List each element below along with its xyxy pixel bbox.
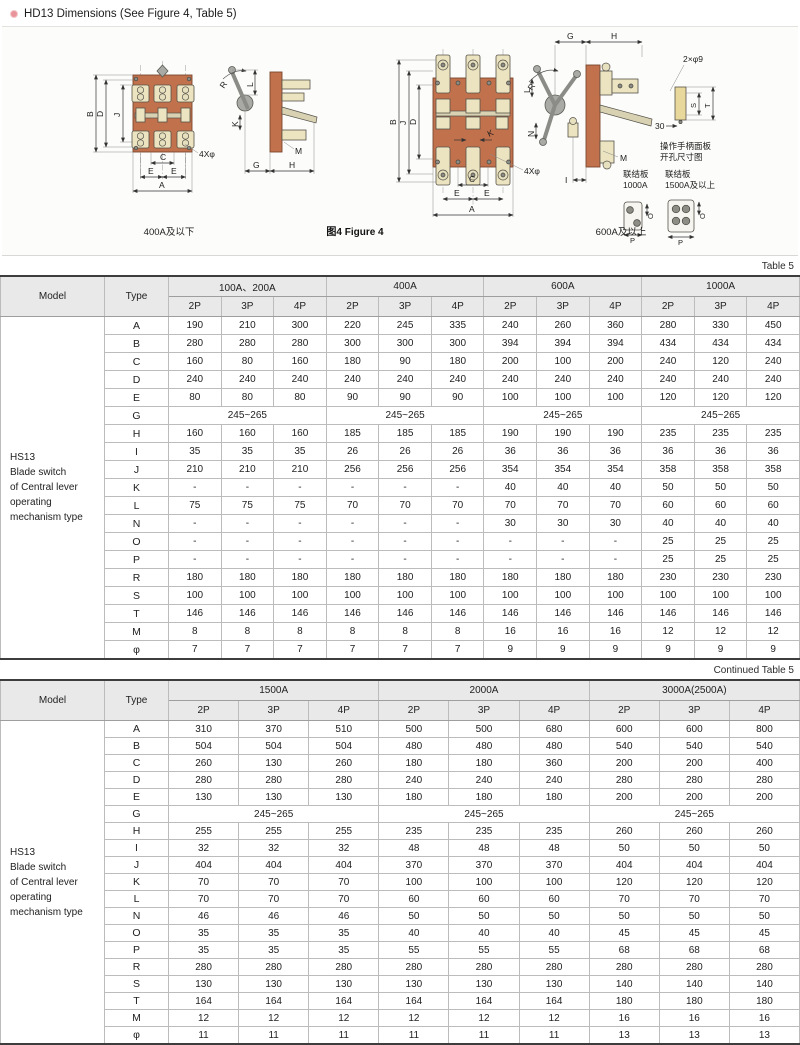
value-cell: 60 <box>642 497 695 515</box>
value-cell: - <box>379 515 432 533</box>
caption-600a: 600A及以上 <box>596 227 647 238</box>
value-cell: 280 <box>309 959 379 976</box>
value-cell: 25 <box>642 533 695 551</box>
value-cell: 32 <box>309 840 379 857</box>
value-cell: 70 <box>239 891 309 908</box>
dim-label-k: K <box>230 121 240 127</box>
value-cell: 46 <box>239 908 309 925</box>
value-cell: - <box>431 479 484 497</box>
table-row: L707070606060707070 <box>1 891 800 908</box>
value-cell: 260 <box>169 755 239 772</box>
value-cell: 240 <box>379 772 449 789</box>
value-cell: 50 <box>729 908 799 925</box>
value-cell: 46 <box>169 908 239 925</box>
value-cell: - <box>274 551 327 569</box>
value-cell: - <box>484 551 537 569</box>
side-view-400a: R L K M G H <box>217 67 317 175</box>
value-cell: 130 <box>169 976 239 993</box>
value-cell: 50 <box>659 908 729 925</box>
value-cell: 50 <box>519 908 589 925</box>
value-cell: 35 <box>309 942 379 959</box>
value-cell: 600 <box>659 721 729 738</box>
value-cell: 7 <box>379 641 432 660</box>
holes-note: 2×φ9 <box>683 54 703 64</box>
value-cell: 200 <box>589 789 659 806</box>
row-type: B <box>105 738 169 755</box>
row-type: T <box>105 993 169 1010</box>
value-cell: 120 <box>694 389 747 407</box>
value-cell: 35 <box>169 925 239 942</box>
value-cell: 130 <box>379 976 449 993</box>
plate2-amp: 1500A及以上 <box>665 180 716 190</box>
table-row: P---------252525 <box>1 551 800 569</box>
table-row: K707070100100100120120120 <box>1 874 800 891</box>
value-cell: 70 <box>326 497 379 515</box>
table-row: E130130130180180180200200200 <box>1 789 800 806</box>
value-cell: 36 <box>484 443 537 461</box>
dim-label-j: J <box>112 113 122 117</box>
value-cell: 16 <box>484 623 537 641</box>
value-cell: 55 <box>519 942 589 959</box>
value-cell: 240 <box>589 371 642 389</box>
value-cell: 48 <box>449 840 519 857</box>
value-cell: 36 <box>642 443 695 461</box>
table-row: D280280280240240240280280280 <box>1 772 800 789</box>
table-row: M888888161616121212 <box>1 623 800 641</box>
value-cell: 146 <box>431 605 484 623</box>
value-cell: 200 <box>589 353 642 371</box>
value-cell: 394 <box>484 335 537 353</box>
value-cell: 70 <box>239 874 309 891</box>
value-cell: 240 <box>274 371 327 389</box>
row-type: K <box>105 874 169 891</box>
table-row: P353535555555686868 <box>1 942 800 959</box>
value-cell: - <box>169 479 222 497</box>
value-cell: 180 <box>449 789 519 806</box>
value-cell: 370 <box>519 857 589 874</box>
value-cell: 12 <box>642 623 695 641</box>
value-cell: 35 <box>221 443 274 461</box>
value-cell: 50 <box>729 840 799 857</box>
row-type: φ <box>105 1027 169 1045</box>
value-cell: - <box>484 533 537 551</box>
value-cell: 50 <box>642 479 695 497</box>
row-type: K <box>105 479 169 497</box>
value-cell: 100 <box>274 587 327 605</box>
value-cell: 12 <box>239 1010 309 1027</box>
value-cell: 310 <box>169 721 239 738</box>
value-cell: 70 <box>537 497 590 515</box>
value-cell: 130 <box>239 755 309 772</box>
dim-label-a: A <box>469 204 475 214</box>
value-cell: 25 <box>694 533 747 551</box>
value-cell: 240 <box>484 317 537 335</box>
value-cell: 70 <box>729 891 799 908</box>
value-cell: 360 <box>519 755 589 772</box>
bolt-note: 4Xφ <box>199 149 215 159</box>
value-cell: - <box>221 515 274 533</box>
value-cell: 9 <box>589 641 642 660</box>
value-cell: 500 <box>379 721 449 738</box>
value-cell: 120 <box>729 874 799 891</box>
value-cell: 100 <box>221 587 274 605</box>
row-type: P <box>105 551 169 569</box>
value-cell: 130 <box>239 789 309 806</box>
row-type: T <box>105 605 169 623</box>
value-cell: 100 <box>694 587 747 605</box>
pole-header: 4P <box>309 701 379 721</box>
value-cell: 25 <box>694 551 747 569</box>
value-cell: 40 <box>484 479 537 497</box>
value-cell: 146 <box>484 605 537 623</box>
value-cell: 140 <box>729 976 799 993</box>
value-cell: 13 <box>589 1027 659 1045</box>
row-type: R <box>105 569 169 587</box>
value-cell: 36 <box>589 443 642 461</box>
value-cell: 146 <box>694 605 747 623</box>
value-cell: 160 <box>221 425 274 443</box>
value-cell: 240 <box>379 371 432 389</box>
value-cell: 70 <box>431 497 484 515</box>
value-cell: 11 <box>449 1027 519 1045</box>
panel-note-line2: 开孔尺寸图 <box>660 152 703 162</box>
value-cell: 240 <box>484 371 537 389</box>
value-cell: 55 <box>449 942 519 959</box>
value-cell: 240 <box>642 371 695 389</box>
value-cell: 25 <box>642 551 695 569</box>
value-cell: 25 <box>747 551 800 569</box>
pole-header: 3P <box>239 701 309 721</box>
plate2-label: 联结板 <box>665 169 691 179</box>
value-cell: 40 <box>449 925 519 942</box>
table-row: G245~265245~265245~265 <box>1 806 800 823</box>
value-cell: 70 <box>589 891 659 908</box>
value-cell: - <box>379 479 432 497</box>
dimensions-table-1: ModelType100A、200A400A600A1000A2P3P4P2P3… <box>0 275 800 660</box>
value-cell: 11 <box>169 1027 239 1045</box>
table-row: φ111111111111131313 <box>1 1027 800 1045</box>
value-cell: 32 <box>239 840 309 857</box>
value-cell: 32 <box>169 840 239 857</box>
value-cell: 11 <box>519 1027 589 1045</box>
value-cell: 9 <box>642 641 695 660</box>
model-label: HS13Blade switchof Central leveroperatin… <box>1 317 105 660</box>
dim-label-a: A <box>159 180 165 190</box>
value-cell: 300 <box>379 335 432 353</box>
value-cell: 35 <box>239 925 309 942</box>
value-cell: 146 <box>379 605 432 623</box>
front-view-600a: B J D K 4Xφ C E E A <box>388 49 540 217</box>
bullet-icon <box>10 10 18 18</box>
value-cell: 280 <box>519 959 589 976</box>
value-cell: 235 <box>449 823 519 840</box>
value-cell: 12 <box>747 623 800 641</box>
plate1-label: 联结板 <box>623 169 649 179</box>
table-row: S100100100100100100100100100100100100 <box>1 587 800 605</box>
table-row: N464646505050505050 <box>1 908 800 925</box>
table-row: S130130130130130130140140140 <box>1 976 800 993</box>
value-cell: 11 <box>379 1027 449 1045</box>
group-header: 600A <box>484 276 642 297</box>
value-cell: 164 <box>519 993 589 1010</box>
value-cell: 48 <box>519 840 589 857</box>
value-cell: 394 <box>589 335 642 353</box>
value-cell: 26 <box>431 443 484 461</box>
dim-label-h: H <box>289 160 295 170</box>
value-cell: 146 <box>589 605 642 623</box>
value-cell: 256 <box>431 461 484 479</box>
value-cell: 12 <box>169 1010 239 1027</box>
value-cell: - <box>326 551 379 569</box>
value-cell: 255 <box>169 823 239 840</box>
value-cell: 200 <box>484 353 537 371</box>
value-cell: 60 <box>379 891 449 908</box>
value-cell: 60 <box>694 497 747 515</box>
row-type: N <box>105 515 169 533</box>
value-cell: 35 <box>239 942 309 959</box>
value-cell: 500 <box>449 721 519 738</box>
value-cell: 100 <box>519 874 589 891</box>
value-cell: 13 <box>729 1027 799 1045</box>
pole-header: 4P <box>274 297 327 317</box>
value-cell: 220 <box>326 317 379 335</box>
model-header: Model <box>1 680 105 721</box>
value-cell: 35 <box>169 443 222 461</box>
row-type: J <box>105 461 169 479</box>
value-cell: 280 <box>221 335 274 353</box>
value-cell: 146 <box>747 605 800 623</box>
type-header: Type <box>105 276 169 317</box>
continued-table-5-tag: Continued Table 5 <box>0 660 800 679</box>
value-cell: 180 <box>431 569 484 587</box>
value-cell: 360 <box>589 317 642 335</box>
model-header: Model <box>1 276 105 317</box>
value-cell: 36 <box>747 443 800 461</box>
value-cell: 7 <box>169 641 222 660</box>
value-cell: 180 <box>729 993 799 1010</box>
value-cell: 30 <box>484 515 537 533</box>
value-cell: 100 <box>589 587 642 605</box>
value-cell: - <box>326 533 379 551</box>
dim-label-e: E <box>148 166 154 176</box>
value-cell: 90 <box>326 389 379 407</box>
value-cell: 164 <box>169 993 239 1010</box>
value-cell: 434 <box>747 335 800 353</box>
value-cell: 100 <box>379 587 432 605</box>
value-cell: 70 <box>484 497 537 515</box>
value-cell: 235 <box>694 425 747 443</box>
value-cell: 450 <box>747 317 800 335</box>
value-cell: 434 <box>642 335 695 353</box>
dim-label-c: C <box>160 152 166 162</box>
value-cell: 50 <box>589 840 659 857</box>
value-cell: 146 <box>169 605 222 623</box>
value-cell: 404 <box>589 857 659 874</box>
dim-label-r: R <box>217 79 229 90</box>
value-cell: 9 <box>694 641 747 660</box>
value-cell: 100 <box>747 587 800 605</box>
row-type: I <box>105 840 169 857</box>
row-type: H <box>105 823 169 840</box>
value-cell: 8 <box>274 623 327 641</box>
value-cell: - <box>589 533 642 551</box>
value-cell: 16 <box>589 623 642 641</box>
value-cell: 180 <box>379 789 449 806</box>
dim-label-e: E <box>171 166 177 176</box>
merged-value: 245~265 <box>642 407 800 425</box>
pole-header: 2P <box>589 701 659 721</box>
value-cell: 40 <box>589 479 642 497</box>
row-type: D <box>105 772 169 789</box>
value-cell: - <box>537 551 590 569</box>
value-cell: 80 <box>221 389 274 407</box>
value-cell: 7 <box>221 641 274 660</box>
value-cell: - <box>379 533 432 551</box>
value-cell: 354 <box>484 461 537 479</box>
value-cell: 40 <box>747 515 800 533</box>
value-cell: - <box>274 479 327 497</box>
dim-label-s: S <box>689 103 698 108</box>
value-cell: 180 <box>379 569 432 587</box>
dim-label-o: O <box>646 213 655 219</box>
dim-label-e: E <box>454 188 460 198</box>
value-cell: 50 <box>449 908 519 925</box>
value-cell: 146 <box>326 605 379 623</box>
value-cell: 235 <box>642 425 695 443</box>
pole-header: 4P <box>747 297 800 317</box>
value-cell: 120 <box>659 874 729 891</box>
value-cell: 404 <box>659 857 729 874</box>
bolt-note: 4Xφ <box>524 166 540 176</box>
value-cell: 55 <box>379 942 449 959</box>
value-cell: 100 <box>431 587 484 605</box>
value-cell: 394 <box>537 335 590 353</box>
value-cell: 146 <box>537 605 590 623</box>
pole-header: 2P <box>326 297 379 317</box>
value-cell: 480 <box>379 738 449 755</box>
value-cell: 164 <box>449 993 519 1010</box>
value-cell: 160 <box>169 353 222 371</box>
value-cell: 240 <box>169 371 222 389</box>
value-cell: 260 <box>309 755 379 772</box>
value-cell: 130 <box>309 976 379 993</box>
value-cell: 75 <box>169 497 222 515</box>
row-type: S <box>105 587 169 605</box>
row-type: E <box>105 389 169 407</box>
value-cell: 190 <box>484 425 537 443</box>
value-cell: - <box>431 551 484 569</box>
value-cell: 12 <box>449 1010 519 1027</box>
figure-4-panel: B D J C E E A 4Xφ R L K M <box>2 26 798 256</box>
group-header: 400A <box>326 276 484 297</box>
value-cell: 9 <box>747 641 800 660</box>
group-header: 2000A <box>379 680 589 701</box>
value-cell: 510 <box>309 721 379 738</box>
value-cell: 50 <box>694 479 747 497</box>
value-cell: 120 <box>642 389 695 407</box>
value-cell: 404 <box>239 857 309 874</box>
value-cell: 164 <box>239 993 309 1010</box>
row-type: φ <box>105 641 169 660</box>
pole-header: 4P <box>589 297 642 317</box>
value-cell: 280 <box>379 959 449 976</box>
value-cell: 280 <box>729 772 799 789</box>
value-cell: 210 <box>274 461 327 479</box>
dim-label-l: L <box>522 88 532 93</box>
table-row: HS13Blade switchof Central leveroperatin… <box>1 721 800 738</box>
row-type: E <box>105 789 169 806</box>
value-cell: 240 <box>449 772 519 789</box>
value-cell: 16 <box>729 1010 799 1027</box>
table-row: φ777777999999 <box>1 641 800 660</box>
value-cell: 240 <box>519 772 589 789</box>
value-cell: 404 <box>309 857 379 874</box>
value-cell: 16 <box>537 623 590 641</box>
row-type: J <box>105 857 169 874</box>
table-row: G245~265245~265245~265245~265 <box>1 407 800 425</box>
value-cell: - <box>326 515 379 533</box>
value-cell: - <box>274 515 327 533</box>
value-cell: 7 <box>431 641 484 660</box>
caption-figure-4: 图4 Figure 4 <box>326 226 384 238</box>
value-cell: 280 <box>274 335 327 353</box>
value-cell: 13 <box>659 1027 729 1045</box>
caption-400a: 400A及以下 <box>144 227 195 238</box>
value-cell: 90 <box>379 353 432 371</box>
value-cell: 180 <box>659 993 729 1010</box>
value-cell: 8 <box>326 623 379 641</box>
merged-value: 245~265 <box>484 407 642 425</box>
row-type: D <box>105 371 169 389</box>
value-cell: 180 <box>449 755 519 772</box>
table-row: J404404404370370370404404404 <box>1 857 800 874</box>
dim-label-n: N <box>526 131 536 137</box>
value-cell: 358 <box>642 461 695 479</box>
value-cell: 434 <box>694 335 747 353</box>
connecting-plate-1500a: 联结板 1500A及以上 O P <box>665 169 716 247</box>
value-cell: 185 <box>379 425 432 443</box>
value-cell: 70 <box>169 874 239 891</box>
table-row: D240240240240240240240240240240240240 <box>1 371 800 389</box>
pole-header: 4P <box>519 701 589 721</box>
value-cell: 70 <box>169 891 239 908</box>
value-cell: 370 <box>449 857 519 874</box>
pole-header: 4P <box>729 701 799 721</box>
value-cell: 40 <box>642 515 695 533</box>
row-type: R <box>105 959 169 976</box>
value-cell: 180 <box>326 353 379 371</box>
panel-note-line1: 操作手柄面板 <box>660 141 712 151</box>
value-cell: 370 <box>239 721 309 738</box>
value-cell: 540 <box>659 738 729 755</box>
value-cell: 164 <box>379 993 449 1010</box>
value-cell: 25 <box>747 533 800 551</box>
value-cell: 80 <box>221 353 274 371</box>
value-cell: 68 <box>729 942 799 959</box>
table-row: J210210210256256256354354354358358358 <box>1 461 800 479</box>
value-cell: 260 <box>537 317 590 335</box>
value-cell: 160 <box>274 353 327 371</box>
value-cell: 210 <box>169 461 222 479</box>
value-cell: 280 <box>309 772 379 789</box>
value-cell: 60 <box>519 891 589 908</box>
value-cell: 180 <box>274 569 327 587</box>
value-cell: 300 <box>274 317 327 335</box>
value-cell: 11 <box>309 1027 379 1045</box>
value-cell: 235 <box>747 425 800 443</box>
dim-label-m: M <box>295 146 302 156</box>
value-cell: - <box>221 533 274 551</box>
